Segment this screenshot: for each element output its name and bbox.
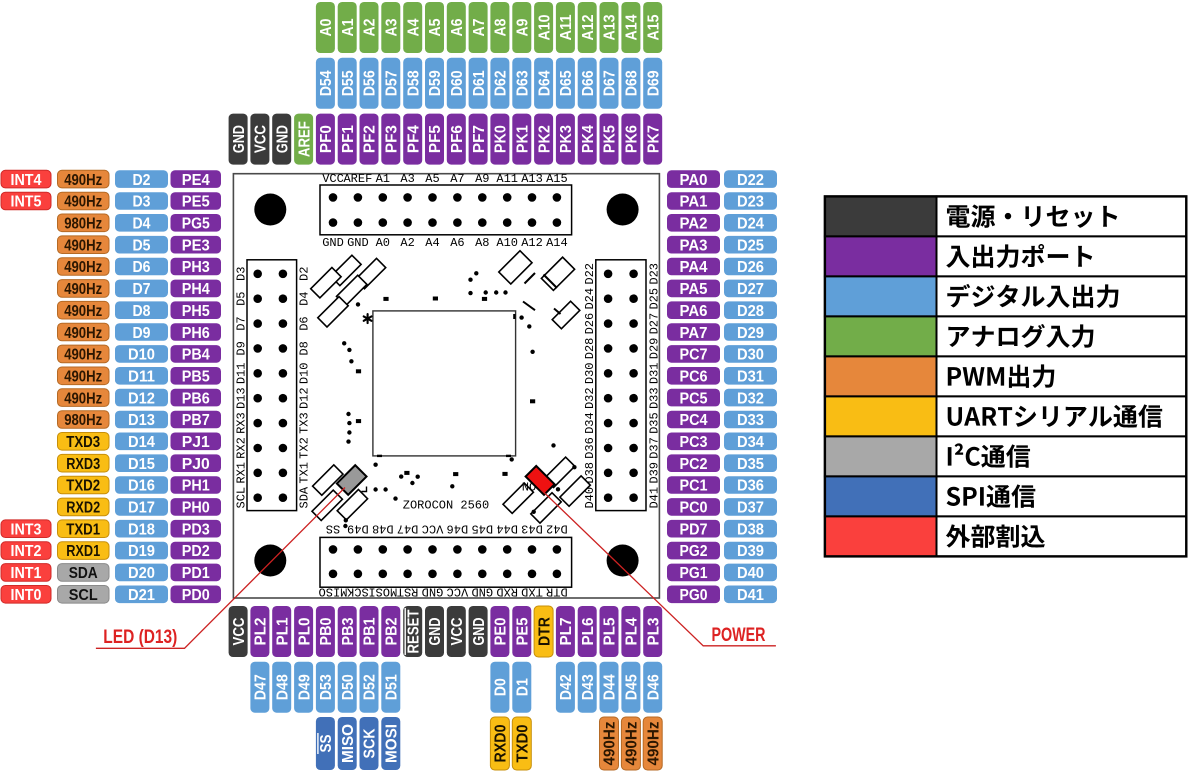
svg-text:490Hz: 490Hz (624, 722, 641, 766)
svg-text:VCC: VCC (231, 617, 248, 645)
svg-text:GND: GND (231, 125, 248, 153)
svg-text:PF1: PF1 (340, 125, 357, 153)
svg-text:A12: A12 (521, 236, 543, 250)
svg-text:PB6: PB6 (182, 390, 210, 407)
svg-text:D41: D41 (647, 487, 661, 509)
svg-text:GND: GND (422, 585, 444, 599)
svg-text:D9: D9 (235, 341, 249, 355)
svg-text:D12: D12 (298, 387, 312, 409)
svg-text:D34: D34 (583, 412, 597, 434)
svg-text:D68: D68 (624, 70, 641, 96)
svg-text:D1: D1 (515, 678, 532, 696)
svg-text:TX3: TX3 (298, 412, 312, 434)
svg-text:PK2: PK2 (536, 125, 553, 153)
svg-text:A8: A8 (493, 18, 510, 36)
svg-text:PK6: PK6 (624, 125, 641, 153)
svg-text:INT5: INT5 (11, 194, 42, 211)
svg-text:D35: D35 (647, 412, 661, 434)
svg-text:490Hz: 490Hz (64, 347, 102, 364)
svg-text:D54: D54 (318, 70, 335, 96)
svg-text:A0: A0 (318, 18, 335, 36)
svg-text:A5: A5 (425, 172, 439, 186)
svg-text:PL1: PL1 (274, 617, 291, 645)
svg-text:PG2: PG2 (680, 543, 708, 560)
svg-text:GND: GND (471, 585, 493, 599)
svg-text:D30: D30 (583, 362, 597, 384)
svg-text:PL3: PL3 (645, 617, 662, 645)
svg-text:PH4: PH4 (182, 281, 210, 298)
svg-text:D55: D55 (340, 70, 357, 96)
svg-text:D46: D46 (447, 522, 469, 536)
svg-text:PF7: PF7 (471, 125, 488, 153)
svg-text:SCL: SCL (235, 487, 249, 509)
svg-text:D66: D66 (580, 70, 597, 96)
svg-text:INT1: INT1 (11, 565, 42, 582)
svg-text:PC6: PC6 (680, 369, 708, 386)
svg-text:RX3: RX3 (235, 412, 249, 434)
svg-text:MOSI: MOSI (368, 585, 397, 599)
svg-text:D42: D42 (546, 522, 568, 536)
svg-text:A15: A15 (546, 172, 568, 186)
svg-text:PF3: PF3 (384, 125, 401, 153)
svg-text:A11: A11 (496, 172, 518, 186)
svg-text:PD0: PD0 (182, 587, 210, 604)
svg-text:PE5: PE5 (182, 194, 210, 211)
svg-text:490Hz: 490Hz (64, 172, 102, 189)
svg-text:D36: D36 (583, 437, 597, 459)
svg-text:SDA: SDA (298, 486, 312, 508)
svg-text:TXD: TXD (521, 585, 543, 599)
svg-text:D51: D51 (384, 674, 401, 700)
svg-text:D60: D60 (449, 70, 466, 96)
svg-text:D2: D2 (133, 172, 151, 189)
svg-text:INT4: INT4 (11, 172, 42, 189)
svg-text:A4: A4 (405, 18, 422, 36)
svg-text:490Hz: 490Hz (64, 369, 102, 386)
svg-text:PC0: PC0 (680, 500, 708, 517)
svg-text:PB7: PB7 (182, 412, 210, 429)
svg-text:PK3: PK3 (558, 125, 575, 153)
svg-text:D16: D16 (128, 478, 155, 495)
svg-text:A1: A1 (340, 18, 357, 36)
svg-text:RESET: RESET (405, 609, 422, 653)
svg-text:PH6: PH6 (182, 325, 210, 342)
svg-text:D24: D24 (583, 288, 597, 310)
svg-text:D27: D27 (737, 281, 764, 298)
svg-text:D45: D45 (624, 674, 641, 700)
svg-text:D25: D25 (737, 237, 764, 254)
svg-text:SCK: SCK (362, 728, 379, 758)
svg-text:AREF: AREF (296, 121, 313, 157)
svg-text:D37: D37 (647, 437, 661, 459)
svg-text:RX2: RX2 (235, 437, 249, 459)
svg-text:A6: A6 (450, 236, 464, 250)
svg-text:A9: A9 (475, 172, 489, 186)
svg-text:D29: D29 (647, 338, 661, 360)
svg-text:RXD0: RXD0 (493, 724, 510, 762)
svg-text:490Hz: 490Hz (64, 390, 102, 407)
svg-text:A12: A12 (580, 14, 597, 40)
svg-text:490Hz: 490Hz (64, 259, 102, 276)
svg-text:D10: D10 (298, 362, 312, 384)
svg-text:GND: GND (274, 125, 291, 153)
svg-text:D39: D39 (737, 543, 764, 560)
svg-text:PG0: PG0 (680, 587, 708, 604)
svg-text:DTR: DTR (546, 585, 568, 599)
svg-text:PB1: PB1 (362, 617, 379, 645)
svg-text:A10: A10 (536, 14, 553, 40)
svg-text:PA0: PA0 (680, 172, 708, 189)
svg-text:A0: A0 (376, 236, 390, 250)
svg-text:D64: D64 (536, 70, 553, 96)
svg-text:GND: GND (427, 618, 444, 646)
svg-text:D2: D2 (298, 267, 312, 281)
svg-text:490Hz: 490Hz (645, 722, 662, 766)
svg-text:ZOROCON 2560: ZOROCON 2560 (403, 499, 489, 513)
svg-text:PK7: PK7 (645, 125, 662, 153)
svg-text:D23: D23 (737, 194, 764, 211)
svg-text:PE3: PE3 (182, 237, 210, 254)
svg-text:D33: D33 (647, 387, 661, 409)
svg-text:A11: A11 (558, 14, 575, 40)
svg-text:D30: D30 (737, 347, 764, 364)
svg-text:D31: D31 (737, 369, 764, 386)
svg-text:RXD1: RXD1 (66, 543, 100, 560)
svg-text:TX1: TX1 (298, 462, 312, 484)
svg-text:D56: D56 (362, 70, 379, 96)
svg-text:D4: D4 (298, 291, 312, 305)
svg-text:D61: D61 (471, 70, 488, 96)
svg-text:RST: RST (397, 585, 419, 599)
svg-text:D6: D6 (133, 259, 151, 276)
svg-text:A2: A2 (362, 18, 379, 36)
svg-text:POWER: POWER (712, 625, 766, 646)
svg-text:PH1: PH1 (182, 478, 210, 495)
svg-text:D58: D58 (405, 70, 422, 96)
svg-text:PK0: PK0 (493, 125, 510, 153)
svg-text:A4: A4 (425, 236, 439, 250)
svg-text:D63: D63 (515, 70, 532, 96)
svg-text:VCC: VCC (449, 617, 466, 645)
svg-text:PK5: PK5 (602, 125, 619, 153)
svg-text:AREF: AREF (343, 172, 372, 186)
svg-text:D25: D25 (647, 288, 661, 310)
svg-text:D11: D11 (128, 369, 155, 386)
svg-text:D52: D52 (362, 674, 379, 700)
svg-text:D8: D8 (298, 341, 312, 355)
svg-text:D21: D21 (128, 587, 155, 604)
svg-text:D0: D0 (493, 678, 510, 696)
svg-text:D12: D12 (128, 390, 155, 407)
svg-text:PC4: PC4 (680, 412, 708, 429)
svg-text:D24: D24 (737, 216, 764, 233)
svg-text:SCK: SCK (346, 585, 368, 599)
svg-text:TX2: TX2 (298, 437, 312, 459)
svg-text:D35: D35 (737, 456, 764, 473)
svg-text:PL7: PL7 (558, 617, 575, 645)
svg-text:A8: A8 (475, 236, 489, 250)
svg-text:D27: D27 (647, 313, 661, 335)
svg-text:D65: D65 (558, 70, 575, 96)
svg-text:PA2: PA2 (680, 216, 708, 233)
svg-text:RXD: RXD (496, 585, 518, 599)
svg-text:D9: D9 (133, 325, 151, 342)
svg-text:PA3: PA3 (680, 237, 708, 254)
svg-text:PF0: PF0 (318, 125, 335, 153)
svg-text:PD7: PD7 (680, 521, 708, 538)
svg-text:GND: GND (347, 236, 369, 250)
svg-text:D13: D13 (235, 387, 249, 409)
svg-text:980Hz: 980Hz (64, 216, 102, 233)
svg-text:D23: D23 (647, 263, 661, 285)
svg-text:D20: D20 (128, 565, 155, 582)
svg-text:D44: D44 (602, 674, 619, 700)
svg-text:D22: D22 (583, 263, 597, 285)
svg-text:SCL: SCL (69, 587, 98, 604)
svg-text:D5: D5 (235, 291, 249, 305)
svg-text:VCC: VCC (253, 125, 270, 153)
svg-text:PC3: PC3 (680, 434, 708, 451)
svg-text:D22: D22 (737, 172, 764, 189)
svg-text:SS: SS (326, 522, 340, 536)
svg-text:PB3: PB3 (340, 617, 357, 645)
svg-text:MISO: MISO (340, 724, 357, 763)
svg-text:D11: D11 (235, 362, 249, 384)
svg-text:SDA: SDA (69, 565, 98, 582)
svg-text:A14: A14 (624, 14, 641, 40)
svg-text:A14: A14 (546, 236, 568, 250)
svg-text:MISO: MISO (319, 585, 348, 599)
svg-text:D36: D36 (737, 478, 764, 495)
svg-text:D49: D49 (347, 522, 369, 536)
svg-text:A7: A7 (450, 172, 464, 186)
svg-text:D42: D42 (558, 674, 575, 700)
svg-text:A10: A10 (496, 236, 518, 250)
svg-text:VCC: VCC (322, 172, 344, 186)
svg-text:PC2: PC2 (680, 456, 708, 473)
svg-text:A13: A13 (521, 172, 543, 186)
svg-text:PL0: PL0 (296, 617, 313, 645)
svg-text:D15: D15 (128, 456, 155, 473)
svg-text:D46: D46 (645, 674, 662, 700)
svg-text:PA4: PA4 (680, 259, 708, 276)
svg-text:PA6: PA6 (680, 303, 708, 320)
svg-text:D44: D44 (496, 522, 518, 536)
svg-text:PJ0: PJ0 (182, 456, 210, 473)
svg-text:D5: D5 (133, 237, 151, 254)
svg-text:D67: D67 (602, 70, 619, 96)
svg-text:A3: A3 (400, 172, 414, 186)
svg-text:RXD2: RXD2 (66, 500, 100, 517)
svg-text:PD1: PD1 (182, 565, 210, 582)
svg-text:D69: D69 (645, 70, 662, 96)
svg-text:490Hz: 490Hz (64, 325, 102, 342)
svg-text:D40: D40 (737, 565, 764, 582)
svg-text:RX1: RX1 (235, 462, 249, 484)
svg-text:PD2: PD2 (182, 543, 210, 560)
svg-text:TXD0: TXD0 (515, 724, 532, 762)
svg-text:GND: GND (471, 618, 488, 646)
svg-text:D19: D19 (128, 543, 155, 560)
svg-text:490Hz: 490Hz (64, 194, 102, 211)
svg-text:PB4: PB4 (182, 347, 210, 364)
svg-text:D41: D41 (737, 587, 764, 604)
svg-text:D3: D3 (133, 194, 151, 211)
svg-text:D10: D10 (128, 347, 155, 364)
svg-text:PF4: PF4 (405, 125, 422, 153)
svg-text:A7: A7 (471, 18, 488, 36)
svg-text:PF6: PF6 (449, 125, 466, 153)
svg-text:PG1: PG1 (680, 565, 708, 582)
svg-text:D7: D7 (235, 316, 249, 330)
svg-text:D14: D14 (128, 434, 155, 451)
svg-text:A5: A5 (427, 18, 444, 36)
svg-text:D32: D32 (583, 387, 597, 409)
svg-text:D32: D32 (737, 390, 764, 407)
svg-text:PA5: PA5 (680, 281, 708, 298)
svg-text:D48: D48 (274, 674, 291, 700)
svg-text:PH5: PH5 (182, 303, 210, 320)
svg-text:PH3: PH3 (182, 259, 210, 276)
svg-text:D28: D28 (583, 338, 597, 360)
svg-text:D43: D43 (580, 674, 597, 700)
svg-text:PG5: PG5 (182, 216, 210, 233)
svg-text:PL2: PL2 (253, 617, 270, 645)
svg-text:PL6: PL6 (580, 617, 597, 645)
svg-text:D45: D45 (471, 522, 493, 536)
svg-text:D18: D18 (128, 521, 155, 538)
svg-text:INT2: INT2 (11, 543, 42, 560)
svg-text:D57: D57 (384, 70, 401, 96)
svg-text:D50: D50 (340, 674, 357, 700)
svg-text:VCC: VCC (422, 522, 444, 536)
svg-text:DTR: DTR (536, 617, 553, 646)
svg-text:PF2: PF2 (362, 125, 379, 153)
svg-text:PE0: PE0 (493, 617, 510, 645)
svg-text:PD3: PD3 (182, 521, 210, 538)
svg-text:A3: A3 (384, 18, 401, 36)
svg-text:PH0: PH0 (182, 500, 210, 517)
svg-text:D7: D7 (133, 281, 151, 298)
svg-text:PL4: PL4 (624, 617, 641, 645)
svg-text:PE5: PE5 (515, 617, 532, 645)
svg-text:A9: A9 (515, 18, 532, 36)
svg-text:D37: D37 (737, 500, 764, 517)
svg-text:PB2: PB2 (384, 617, 401, 645)
svg-text:PC1: PC1 (680, 478, 708, 495)
svg-text:TXD1: TXD1 (66, 521, 100, 538)
svg-text:PL5: PL5 (602, 617, 619, 645)
svg-text:D26: D26 (737, 259, 764, 276)
svg-text:A2: A2 (400, 236, 414, 250)
svg-text:D13: D13 (128, 412, 155, 429)
svg-text:PB0: PB0 (318, 617, 335, 645)
svg-text:D31: D31 (647, 362, 661, 384)
svg-text:PA7: PA7 (680, 325, 708, 342)
svg-text:D59: D59 (427, 70, 444, 96)
svg-text:RXD3: RXD3 (66, 456, 100, 473)
svg-text:D39: D39 (647, 462, 661, 484)
svg-text:980Hz: 980Hz (64, 412, 102, 429)
svg-text:VCC: VCC (447, 585, 469, 599)
svg-text:D33: D33 (737, 412, 764, 429)
svg-text:A1: A1 (376, 172, 390, 186)
svg-text:D62: D62 (493, 70, 510, 96)
svg-text:GND: GND (322, 236, 344, 250)
svg-text:TXD2: TXD2 (66, 478, 100, 495)
svg-text:490Hz: 490Hz (64, 303, 102, 320)
svg-text:D47: D47 (253, 674, 270, 700)
svg-text:TXD3: TXD3 (66, 434, 100, 451)
svg-text:MOSI: MOSI (384, 724, 401, 763)
svg-text:PA1: PA1 (680, 194, 708, 211)
svg-text:INT3: INT3 (11, 521, 42, 538)
svg-text:PC5: PC5 (680, 390, 708, 407)
svg-text:D49: D49 (296, 674, 313, 700)
svg-text:D53: D53 (318, 674, 335, 700)
svg-text:D38: D38 (737, 521, 764, 538)
svg-text:PK1: PK1 (515, 125, 532, 153)
svg-text:D34: D34 (737, 434, 764, 451)
svg-text:SS: SS (318, 734, 335, 752)
svg-text:PF5: PF5 (427, 125, 444, 153)
svg-text:D8: D8 (133, 303, 151, 320)
svg-text:PK4: PK4 (580, 125, 597, 153)
svg-text:PJ1: PJ1 (182, 434, 210, 451)
svg-text:D28: D28 (737, 303, 764, 320)
svg-text:PC7: PC7 (680, 347, 708, 364)
svg-text:PE4: PE4 (182, 172, 210, 189)
svg-text:INT0: INT0 (11, 587, 42, 604)
svg-text:D4: D4 (133, 216, 151, 233)
svg-text:D29: D29 (737, 325, 764, 342)
svg-text:490Hz: 490Hz (64, 237, 102, 254)
svg-text:D26: D26 (583, 313, 597, 335)
svg-text:D6: D6 (298, 316, 312, 330)
svg-text:D17: D17 (128, 500, 155, 517)
svg-text:PB5: PB5 (182, 369, 210, 386)
svg-text:490Hz: 490Hz (602, 722, 619, 766)
svg-text:A13: A13 (602, 14, 619, 40)
svg-text:LED (D13): LED (D13) (103, 627, 177, 648)
svg-text:D47: D47 (397, 522, 419, 536)
svg-text:A6: A6 (449, 18, 466, 36)
svg-text:A15: A15 (645, 14, 662, 40)
svg-text:D3: D3 (235, 267, 249, 281)
svg-text:D48: D48 (372, 522, 394, 536)
svg-text:490Hz: 490Hz (64, 281, 102, 298)
